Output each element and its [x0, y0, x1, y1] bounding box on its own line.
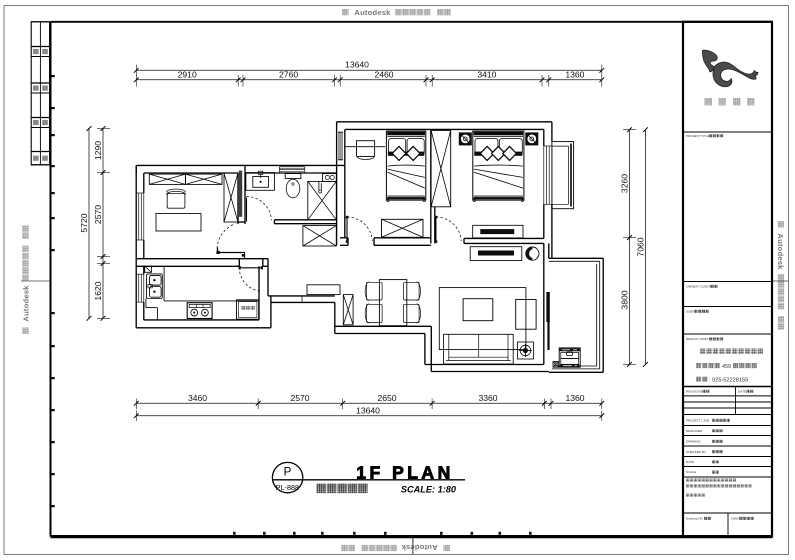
- svg-text:SCALE: SCALE: [686, 470, 696, 474]
- svg-text:2910: 2910: [178, 70, 197, 80]
- svg-text:OWNER / CLIENT: OWNER / CLIENT: [686, 285, 712, 289]
- svg-text:Autodesk: Autodesk: [354, 8, 391, 17]
- svg-text:5720: 5720: [79, 213, 89, 232]
- svg-text:2570: 2570: [290, 393, 309, 403]
- svg-text:459: 459: [722, 364, 731, 370]
- svg-text:2460: 2460: [374, 70, 393, 80]
- svg-text:Autodesk: Autodesk: [22, 285, 31, 322]
- svg-text:PROJECT / JOB: PROJECT / JOB: [686, 419, 709, 423]
- svg-text:CHECKED BY: CHECKED BY: [686, 450, 706, 454]
- svg-text:: 025-52228155: : 025-52228155: [709, 377, 748, 383]
- svg-text:SCALE: 1:80: SCALE: 1:80: [401, 485, 457, 495]
- svg-text:2570: 2570: [93, 205, 103, 224]
- svg-text:PL-888: PL-888: [276, 483, 299, 492]
- svg-text:REVISIONS: REVISIONS: [686, 390, 703, 394]
- svg-text:DRAWING: DRAWING: [686, 440, 701, 444]
- svg-text:3800: 3800: [619, 290, 629, 309]
- svg-text:DATE: DATE: [738, 390, 746, 394]
- svg-text:PROJECT TITLE: PROJECT TITLE: [686, 134, 710, 138]
- svg-text:1620: 1620: [93, 281, 103, 300]
- svg-text:P: P: [284, 466, 292, 478]
- svg-text:Autodesk: Autodesk: [401, 543, 438, 552]
- svg-text:2650: 2650: [377, 393, 396, 403]
- svg-text:13640: 13640: [345, 60, 369, 70]
- svg-text:Drawing NO: Drawing NO: [686, 517, 703, 521]
- svg-text:1360: 1360: [565, 70, 584, 80]
- svg-text:DESIGN / FIRM: DESIGN / FIRM: [686, 337, 708, 341]
- svg-text:DESIGNER: DESIGNER: [686, 429, 703, 433]
- svg-text:3410: 3410: [477, 70, 496, 80]
- svg-text:3460: 3460: [188, 393, 207, 403]
- svg-text:DATE: DATE: [686, 460, 694, 464]
- svg-text:1290: 1290: [93, 141, 103, 160]
- svg-text:A&NO: A&NO: [731, 517, 740, 521]
- svg-text:3360: 3360: [478, 393, 497, 403]
- svg-text:13640: 13640: [356, 406, 380, 416]
- svg-text:1F PLAN: 1F PLAN: [356, 463, 453, 483]
- svg-text:USER: USER: [686, 310, 695, 314]
- svg-text:7060: 7060: [635, 237, 645, 256]
- svg-text:2760: 2760: [279, 70, 298, 80]
- svg-text:1360: 1360: [565, 393, 584, 403]
- svg-text:Autodesk: Autodesk: [776, 233, 785, 270]
- svg-text:3260: 3260: [619, 174, 629, 193]
